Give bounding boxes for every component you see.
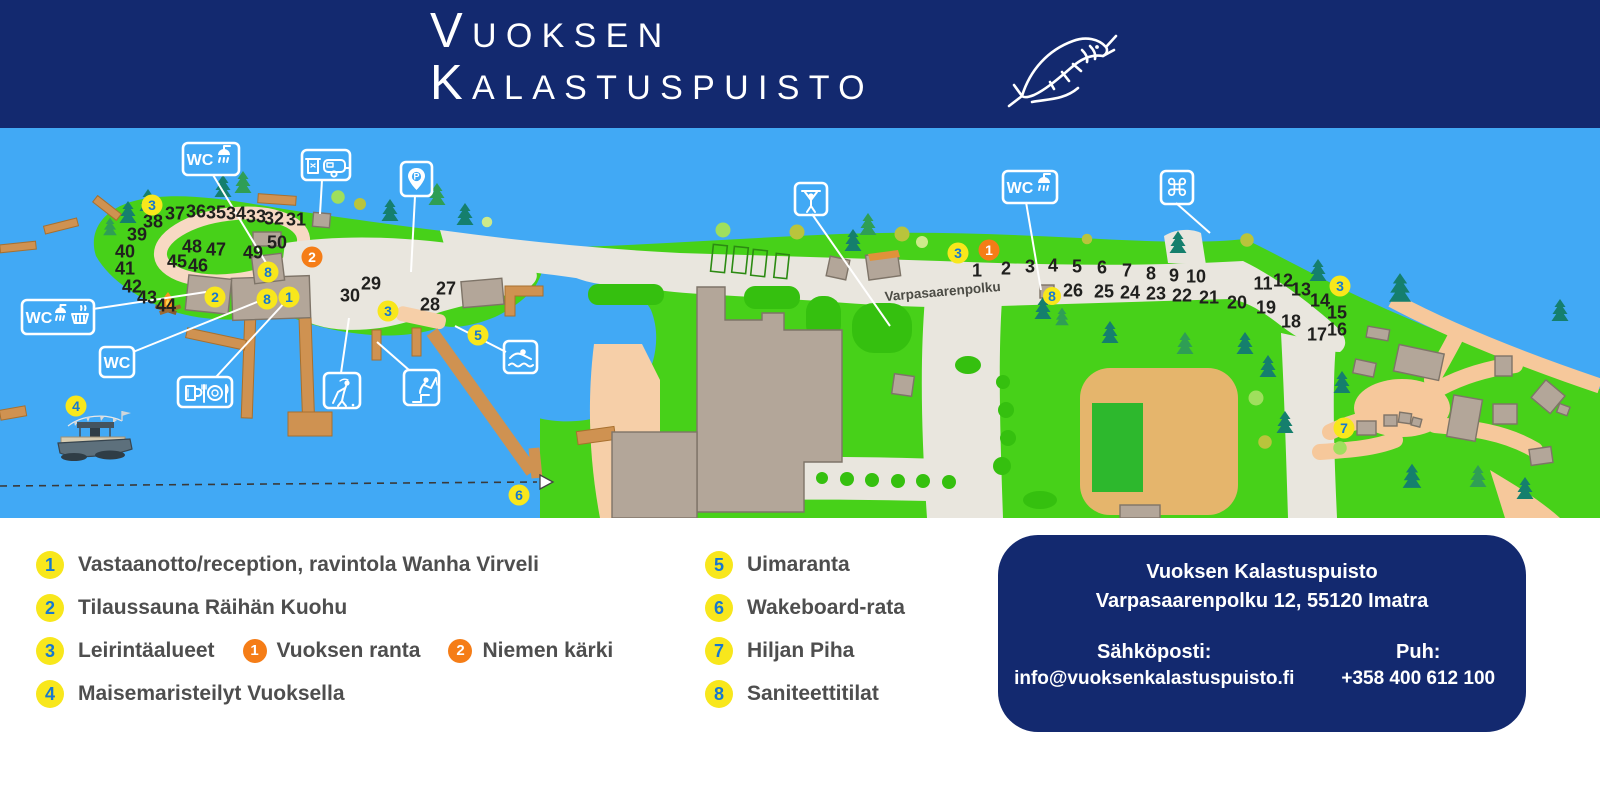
page-title: Vuoksen Kalastuspuisto <box>430 6 874 110</box>
site-number-13: 13 <box>1291 279 1311 299</box>
site-number-23: 23 <box>1146 283 1166 303</box>
legend-sub-marker-2: 2 Niemen kärki <box>448 639 613 663</box>
legend-sub-marker-1: 1 Vuoksen ranta <box>243 639 421 663</box>
orange-marker-1: 1 <box>243 639 267 663</box>
yellow-map-marker-8: 8 <box>258 262 279 283</box>
legend-item-8: 8 Saniteettitilat <box>705 679 905 709</box>
site-number-20: 20 <box>1227 292 1247 312</box>
site-number-25: 25 <box>1094 281 1114 301</box>
svg-text:4: 4 <box>72 398 80 414</box>
legend-label-8: Saniteettitilat <box>747 682 879 706</box>
site-number-43: 43 <box>137 287 157 307</box>
tourist-attraction-sign: ⌘ <box>1161 171 1193 204</box>
site-number-11: 11 <box>1253 273 1272 293</box>
yellow-map-marker-3: 3 <box>378 301 399 322</box>
legend-label-4: Maisemaristeilyt Vuoksella <box>78 682 345 706</box>
attraction-icon: ⌘ <box>1165 174 1189 202</box>
site-number-5: 5 <box>1072 256 1082 276</box>
site-number-35: 35 <box>206 202 226 222</box>
orange-map-marker-1: 1 <box>979 240 1000 261</box>
legend-label-1: Vastaanotto/reception, ravintola Wanha V… <box>78 553 539 577</box>
site-number-50: 50 <box>267 232 287 252</box>
email-value[interactable]: info@vuoksenkalastuspuisto.fi <box>1014 668 1294 690</box>
yellow-map-marker-3: 3 <box>142 195 163 216</box>
legend-item-3: 3 Leirintäalueet 1 Vuoksen ranta 2 Nieme… <box>36 636 613 666</box>
site-number-44: 44 <box>156 295 176 315</box>
svg-text:WC: WC <box>187 152 214 169</box>
svg-text:WC: WC <box>1007 180 1034 197</box>
svg-text:2: 2 <box>308 249 316 265</box>
site-number-36: 36 <box>186 201 206 221</box>
phone-label: Puh: <box>1396 641 1440 664</box>
yellow-map-marker-7: 7 <box>1334 418 1355 439</box>
site-number-10: 10 <box>1186 266 1206 286</box>
site-number-30: 30 <box>340 285 360 305</box>
svg-text:8: 8 <box>264 264 272 280</box>
header: Vuoksen Kalastuspuisto <box>0 0 1600 131</box>
svg-text:8: 8 <box>1048 288 1056 304</box>
orange-marker-2: 2 <box>448 639 472 663</box>
legend-left-column: 1 Vastaanotto/reception, ravintola Wanha… <box>36 550 613 709</box>
legend-right-column: 5 Uimaranta 6 Wakeboard-rata 7 Hiljan Pi… <box>705 550 905 709</box>
legend-marker-6: 6 <box>705 594 733 622</box>
site-number-4: 4 <box>1048 255 1058 275</box>
site-number-31: 31 <box>286 209 306 229</box>
site-number-17: 17 <box>1307 324 1327 344</box>
site-number-9: 9 <box>1169 265 1179 285</box>
orange-map-marker-2: 2 <box>302 247 323 268</box>
site-number-33: 33 <box>246 206 266 226</box>
contact-phone-block: Puh: +358 400 612 100 <box>1310 641 1526 690</box>
yellow-map-marker-5: 5 <box>468 325 489 346</box>
legend-marker-5: 5 <box>705 551 733 579</box>
site-number-19: 19 <box>1256 297 1276 317</box>
contact-name: Vuoksen Kalastuspuisto <box>998 558 1526 587</box>
site-number-24: 24 <box>1120 282 1140 302</box>
email-label: Sähköposti: <box>1097 641 1211 664</box>
yellow-map-marker-3: 3 <box>948 243 969 264</box>
contact-details: Sähköposti: info@vuoksenkalastuspuisto.f… <box>998 641 1526 690</box>
site-number-26: 26 <box>1063 280 1083 300</box>
svg-text:2: 2 <box>211 289 219 305</box>
phone-value[interactable]: +358 400 612 100 <box>1341 668 1495 690</box>
site-number-28: 28 <box>420 294 440 314</box>
site-number-2: 2 <box>1001 258 1011 278</box>
svg-text:3: 3 <box>954 245 962 261</box>
page: Vuoksen Kalastuspuisto <box>0 0 1600 803</box>
legend-label-5: Uimaranta <box>747 553 850 577</box>
svg-text:3: 3 <box>148 197 156 213</box>
site-number-22: 22 <box>1172 285 1192 305</box>
site-number-37: 37 <box>165 203 185 223</box>
site-number-47: 47 <box>206 239 226 259</box>
park-map-svg: WC P <box>0 128 1600 518</box>
legend-marker-8: 8 <box>705 680 733 708</box>
site-number-16: 16 <box>1327 319 1347 339</box>
svg-text:3: 3 <box>1336 278 1344 294</box>
legend-marker-7: 7 <box>705 637 733 665</box>
legend-label-7: Hiljan Piha <box>747 639 854 663</box>
site-number-48: 48 <box>182 236 202 256</box>
legend-marker-2: 2 <box>36 594 64 622</box>
yellow-map-marker-6: 6 <box>509 485 530 506</box>
sports-field <box>1080 368 1238 515</box>
legend-label-2: Tilaussauna Räihän Kuohu <box>78 596 347 620</box>
park-map: WC P <box>0 128 1600 518</box>
svg-text:1: 1 <box>985 242 993 258</box>
site-number-7: 7 <box>1122 260 1132 280</box>
svg-text:7: 7 <box>1340 420 1348 436</box>
site-number-34: 34 <box>226 203 246 223</box>
legend-item-1: 1 Vastaanotto/reception, ravintola Wanha… <box>36 550 613 580</box>
svg-text:8: 8 <box>263 291 271 307</box>
legend-sub-label-1: Vuoksen ranta <box>277 639 421 663</box>
svg-text:WC: WC <box>104 355 131 372</box>
site-number-41: 41 <box>115 258 135 278</box>
title-line-1: Vuoksen <box>430 6 874 58</box>
legend-item-5: 5 Uimaranta <box>705 550 905 580</box>
svg-text:3: 3 <box>384 303 392 319</box>
site-number-8: 8 <box>1146 263 1156 283</box>
contact-card: Vuoksen Kalastuspuisto Varpasaarenpolku … <box>998 535 1526 732</box>
yellow-map-marker-3: 3 <box>1330 276 1351 297</box>
yellow-map-marker-2: 2 <box>205 287 226 308</box>
svg-text:P: P <box>413 172 419 182</box>
legend-label-6: Wakeboard-rata <box>747 596 905 620</box>
legend-item-7: 7 Hiljan Piha <box>705 636 905 666</box>
legend-label-3: Leirintäalueet <box>78 639 215 663</box>
legend-marker-1: 1 <box>36 551 64 579</box>
site-number-49: 49 <box>243 242 263 262</box>
yellow-map-marker-4: 4 <box>66 396 87 417</box>
yellow-map-marker-8: 8 <box>257 289 278 310</box>
legend-item-4: 4 Maisemaristeilyt Vuoksella <box>36 679 613 709</box>
svg-text:5: 5 <box>474 327 482 343</box>
site-number-29: 29 <box>361 273 381 293</box>
title-line-2: Kalastuspuisto <box>430 58 874 110</box>
fish-logo-icon <box>1002 26 1120 114</box>
contact-address: Varpasaarenpolku 12, 55120 Imatra <box>998 587 1526 616</box>
svg-text:WC: WC <box>26 310 53 327</box>
contact-email-block: Sähköposti: info@vuoksenkalastuspuisto.f… <box>998 641 1310 690</box>
yellow-map-marker-1: 1 <box>279 287 300 308</box>
legend-marker-3: 3 <box>36 637 64 665</box>
contact-name-address: Vuoksen Kalastuspuisto Varpasaarenpolku … <box>998 558 1526 616</box>
svg-text:1: 1 <box>285 289 293 305</box>
site-number-32: 32 <box>264 208 284 228</box>
legend-item-2: 2 Tilaussauna Räihän Kuohu <box>36 593 613 623</box>
yellow-map-marker-8: 8 <box>1043 287 1061 305</box>
legend-marker-4: 4 <box>36 680 64 708</box>
site-number-18: 18 <box>1281 311 1301 331</box>
legend-sub-label-2: Niemen kärki <box>482 639 613 663</box>
site-number-21: 21 <box>1199 287 1219 307</box>
site-number-6: 6 <box>1097 257 1107 277</box>
site-number-1: 1 <box>972 260 982 280</box>
legend-item-6: 6 Wakeboard-rata <box>705 593 905 623</box>
svg-text:6: 6 <box>515 487 523 503</box>
site-number-3: 3 <box>1025 256 1035 276</box>
